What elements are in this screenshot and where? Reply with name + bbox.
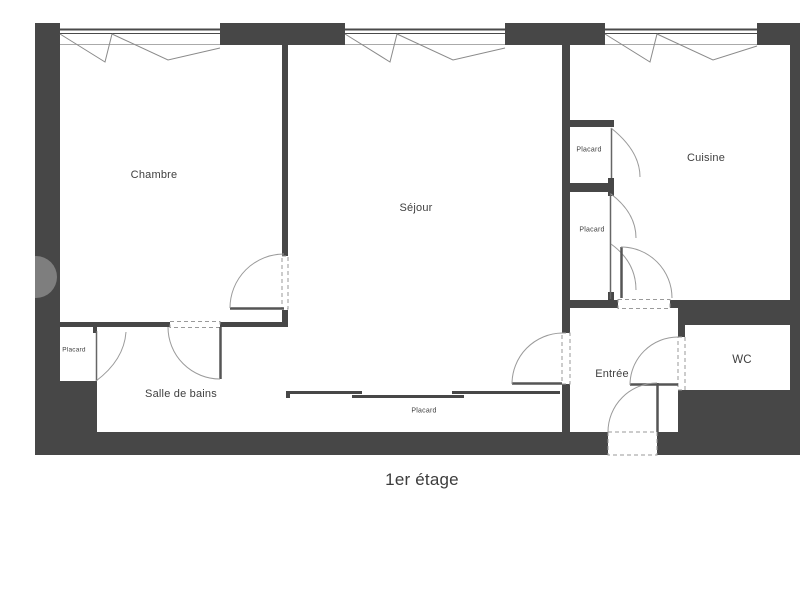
wall-watermark — [15, 256, 57, 298]
wall-sdb-top-left — [60, 322, 170, 327]
wall-top-seg-2 — [218, 23, 347, 45]
wall-top-seg-3 — [503, 23, 607, 45]
slab-below-wc — [678, 390, 790, 432]
door-arc-entree — [608, 383, 657, 432]
room-label-placard-cuisine-bas: Placard — [579, 227, 604, 234]
doorway-openings — [170, 256, 685, 455]
wall-right — [790, 23, 800, 455]
room-label-cuisine: Cuisine — [687, 152, 725, 164]
door-arc-placard-sdb — [96, 332, 126, 381]
passage-entree-cuisine — [618, 300, 670, 309]
wall-placard-mid — [570, 183, 614, 192]
room-label-entree: Entrée — [595, 368, 629, 380]
closet-track-nub — [286, 391, 290, 398]
doorway-entree-exterieur — [608, 432, 657, 455]
door-arc-salle-de-bains — [168, 327, 220, 379]
room-label-wc: WC — [732, 354, 752, 366]
wall-placard-top — [570, 120, 614, 127]
wall-chambre-sejour-lower — [282, 310, 288, 322]
wall-wc-top — [678, 300, 790, 325]
window-cuisine — [605, 23, 757, 62]
room-label-placard-sejour: Placard — [411, 408, 436, 415]
plan-title: 1er étage — [385, 470, 459, 490]
closet-track-2 — [352, 395, 464, 398]
wall-placard-bottom-right — [670, 300, 678, 308]
window-chambre — [60, 23, 220, 62]
closet-track-1 — [290, 391, 362, 394]
wall-bottom-seg-1 — [35, 432, 608, 455]
door-arc-chambre — [230, 254, 284, 308]
doorway-salle-de-bains — [170, 322, 220, 328]
window-sejour — [345, 23, 505, 62]
room-label-salle-de-bains: Salle de bains — [145, 388, 217, 400]
wall-sejour-right-lower — [562, 384, 570, 432]
slab-below-placard-sdb — [55, 381, 97, 432]
room-label-sejour: Séjour — [400, 202, 433, 214]
wall-sdb-top-right — [220, 322, 288, 327]
doorway-sejour — [562, 333, 570, 384]
doorway-chambre — [282, 256, 288, 309]
closet-track-3 — [452, 391, 560, 394]
doorway-wc — [678, 337, 685, 390]
wall-sejour-right-upper — [562, 45, 570, 333]
wall-top-seg-1 — [35, 23, 62, 45]
wall-bottom-seg-2 — [657, 432, 800, 455]
door-arc-cuisine — [621, 247, 672, 298]
room-label-chambre: Chambre — [131, 169, 178, 181]
doors — [96, 128, 678, 432]
door-arc-placard-cuisine-haut — [611, 128, 640, 177]
door-arc-wc — [630, 337, 678, 385]
wall-chambre-sejour-upper — [282, 45, 288, 256]
door-arc-placard-cuisine-bas-2 — [611, 244, 636, 290]
wall-wc-entree-upper — [678, 325, 685, 337]
room-label-placard-sdb: Placard — [62, 347, 85, 354]
door-arc-sejour — [512, 333, 562, 384]
floor-plan-canvas: Chambre Séjour Cuisine Placard Placard S… — [0, 0, 800, 600]
door-arc-placard-cuisine-bas-1 — [611, 194, 636, 238]
floor-plan-drawing — [0, 0, 800, 600]
room-label-placard-cuisine-haut: Placard — [576, 147, 601, 154]
